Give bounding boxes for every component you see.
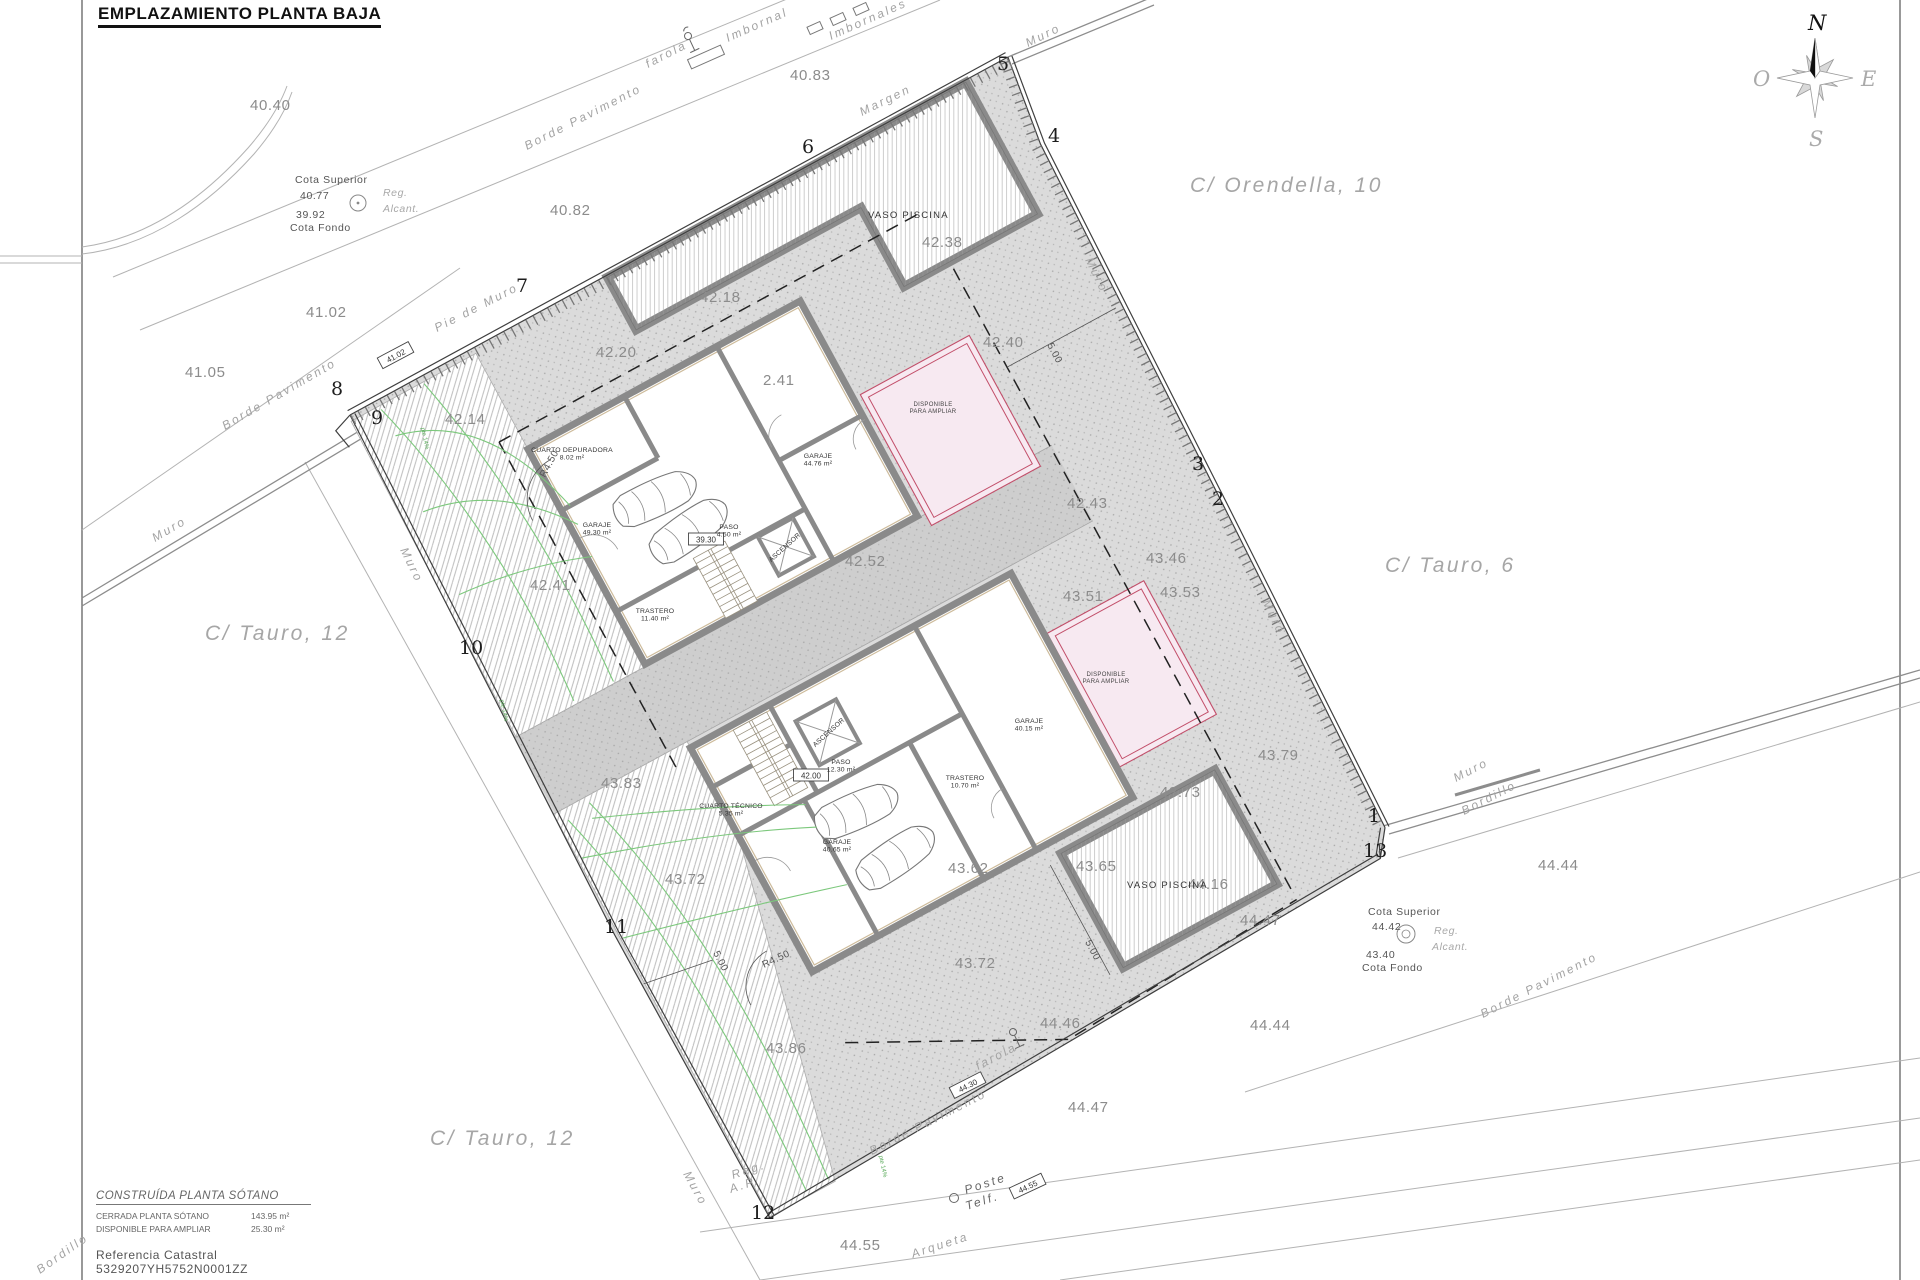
elevation-label: 42.40 (983, 334, 1024, 351)
elevation-label: 43.72 (955, 955, 996, 972)
annotation-label: Muro (1451, 755, 1491, 784)
reg-label: Reg. (383, 187, 408, 199)
cota-fondo-value: 43.40 (1366, 949, 1395, 961)
elevation-label: 44.47 (1068, 1099, 1109, 1116)
room-label: GARAJE44.76 m² (804, 453, 833, 468)
compass-south-label: S (1809, 127, 1823, 151)
elevation-label: 40.40 (250, 97, 291, 114)
elevation-label: 43.62 (948, 860, 989, 877)
room-label: TRASTERO10.70 m² (946, 775, 985, 790)
alcant-label: Alcant. (382, 203, 419, 215)
expand-area-label: DISPONIBLEPARA AMPLIAR (1083, 672, 1130, 685)
elevation-label: 43.65 (1076, 858, 1117, 875)
alcant-label: Alcant. (1431, 941, 1468, 953)
cota-fondo-label: Cota Fondo (290, 222, 351, 234)
street-label: C/ Tauro, 12 (205, 622, 350, 645)
elevation-label: 42.14 (445, 411, 486, 428)
annotation-label: Borde Pavimento (522, 81, 644, 152)
pool-label: VASO PISCINA (1127, 880, 1208, 891)
boxed-level-value: 39.30 (696, 536, 717, 545)
site-plan-drawing: N S E O Cota Superior 40.77 Reg. Alcant.… (0, 0, 1920, 1280)
vertex-number: 8 (331, 378, 343, 400)
compass-north-label: N (1807, 11, 1827, 35)
legend: CONSTRUÍDA PLANTA SÓTANO CERRADA PLANTA … (96, 1190, 311, 1276)
cota-superior-value: 40.77 (300, 190, 329, 202)
catastral-reference: Referencia Catastral 5329207YH5752N0001Z… (96, 1248, 311, 1276)
reg-label: Reg. (1434, 925, 1459, 937)
cota-fondo-label: Cota Fondo (1362, 962, 1423, 974)
elevation-label: 40.82 (550, 202, 591, 219)
cota-block-top-left: Cota Superior 40.77 Reg. Alcant. 39.92 C… (290, 174, 419, 234)
vertex-number: 5 (997, 53, 1009, 75)
annotation-label: Borde Pavimento (220, 356, 339, 433)
cota-block-bottom-right: Cota Superior 44.42 Reg. Alcant. 43.40 C… (1362, 906, 1468, 974)
expand-area-label: DISPONIBLEPARA AMPLIAR (910, 402, 957, 415)
cota-superior-value: 44.42 (1372, 921, 1401, 933)
elevation-label: 44.55 (840, 1237, 881, 1254)
elevation-label: 44.44 (1538, 857, 1579, 874)
room-label: GARAJE40.65 m² (823, 839, 852, 854)
vertex-number: 10 (459, 637, 483, 659)
elevation-label: 42.18 (700, 289, 741, 306)
elevation-label: 43.51 (1063, 588, 1104, 605)
legend-row-label: DISPONIBLE PARA AMPLIAR (96, 1224, 251, 1234)
elevation-label: 42.20 (596, 344, 637, 361)
elevation-label: 40.83 (790, 67, 831, 84)
elevation-label: 42.41 (530, 577, 571, 594)
annotation-label: Muro (150, 514, 189, 545)
vertex-number: 3 (1192, 453, 1204, 475)
boxed-level-value: 42.00 (801, 772, 822, 781)
annotation-label: Borde Pavimento (1478, 949, 1600, 1020)
street-label: C/ Tauro, 12 (430, 1127, 575, 1150)
room-label: PASO4.50 m² (717, 524, 742, 539)
elevation-label: 43.72 (665, 871, 706, 888)
boxed-level: 44.55 (1009, 1173, 1046, 1199)
elevation-label: 42.38 (922, 234, 963, 251)
cota-fondo-value: 39.92 (296, 209, 325, 221)
vertex-number: 4 (1048, 125, 1060, 147)
elevation-label: 43.53 (1160, 584, 1201, 601)
legend-row: DISPONIBLE PARA AMPLIAR 25.30 m² (96, 1224, 311, 1234)
page-title: EMPLAZAMIENTO PLANTA BAJA (98, 4, 381, 28)
elevation-label: 44.47 (1240, 912, 1281, 929)
annotation-label: farola (643, 38, 689, 71)
elevation-label: 41.02 (306, 304, 347, 321)
compass-west-label: O (1753, 67, 1770, 91)
cota-superior-label: Cota Superior (295, 174, 368, 186)
pool-label: VASO PISCINA (868, 210, 949, 221)
room-label: GARAJE40.15 m² (1015, 718, 1044, 733)
elevation-label: 43.86 (766, 1040, 807, 1057)
vertex-number: 9 (371, 407, 383, 429)
vertex-number: 11 (604, 916, 628, 938)
street-label: C/ Tauro, 6 (1385, 554, 1516, 577)
annotation-label: Arqueta (909, 1229, 971, 1261)
boxed-level: 42.00 (794, 769, 829, 781)
compass-east-label: E (1860, 67, 1876, 91)
elevation-label: 43.79 (1258, 747, 1299, 764)
manhole-icon (350, 195, 366, 211)
legend-row: CERRADA PLANTA SÓTANO 143.95 m² (96, 1211, 311, 1221)
elevation-label: 44.46 (1040, 1015, 1081, 1032)
elevation-label: 43.46 (1146, 550, 1187, 567)
legend-row-value: 143.95 m² (251, 1211, 311, 1221)
elevation-label: 2.41 (763, 372, 795, 389)
street-label: C/ Orendella, 10 (1190, 174, 1383, 197)
vertex-number: 1 (1368, 805, 1380, 827)
legend-row-label: CERRADA PLANTA SÓTANO (96, 1211, 251, 1221)
legend-title: CONSTRUÍDA PLANTA SÓTANO (96, 1190, 311, 1205)
elevation-label: 43.83 (601, 775, 642, 792)
annotation-label: Pie de Muro (432, 280, 521, 334)
vertex-number: 13 (1363, 840, 1387, 862)
elevation-label: 43.73 (1160, 784, 1201, 801)
vertex-number: 6 (802, 136, 814, 158)
elevation-label: 44.44 (1250, 1017, 1291, 1034)
elevation-label: 42.52 (845, 553, 886, 570)
slope-label: pte 14% (877, 1155, 888, 1178)
annotation-label: Muro (680, 1169, 710, 1208)
vertex-number: 12 (751, 1202, 775, 1224)
boxed-level: 41.02 (377, 342, 414, 369)
annotation-label: Imbornal (724, 5, 791, 45)
compass-icon: N S E O (1753, 11, 1876, 151)
telephone-pole-icon (950, 1194, 959, 1203)
legend-row-value: 25.30 m² (251, 1224, 311, 1234)
vertex-number: 2 (1212, 488, 1224, 510)
cota-superior-label: Cota Superior (1368, 906, 1441, 918)
elevation-label: 42.43 (1067, 495, 1108, 512)
elevation-label: 41.05 (185, 364, 226, 381)
room-label: GARAJE49.30 m² (583, 522, 612, 537)
site-plan-page: EMPLAZAMIENTO PLANTA BAJA (0, 0, 1920, 1280)
room-label: TRASTERO11.40 m² (636, 608, 675, 623)
